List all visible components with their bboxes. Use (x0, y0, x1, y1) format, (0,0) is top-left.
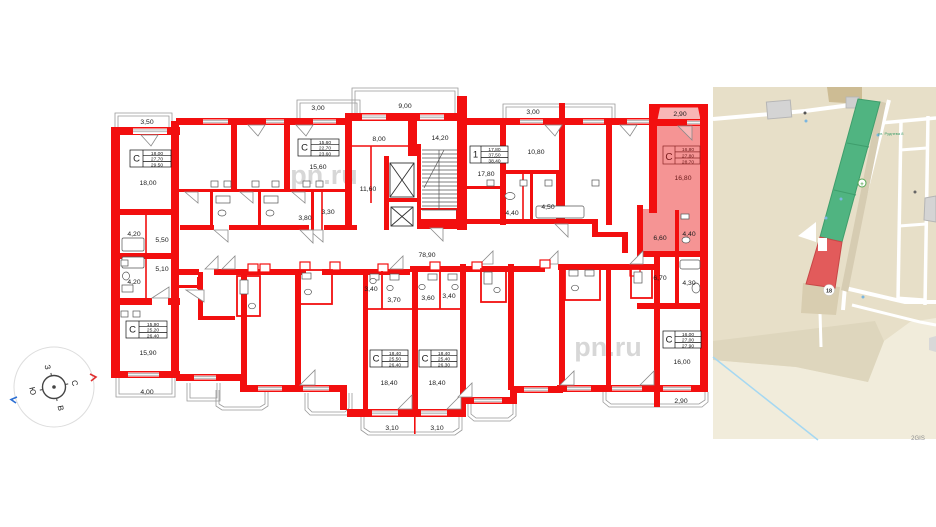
svg-text:3,40: 3,40 (442, 293, 455, 300)
svg-text:2,90: 2,90 (673, 111, 686, 118)
svg-text:3,30: 3,30 (321, 209, 334, 216)
svg-text:5,10: 5,10 (155, 266, 168, 273)
svg-text:10,80: 10,80 (527, 149, 544, 156)
svg-text:18,40: 18,40 (389, 351, 402, 357)
svg-text:18: 18 (826, 289, 832, 295)
svg-text:3,40: 3,40 (364, 286, 377, 293)
svg-text:С: С (301, 143, 308, 154)
svg-text:+: + (860, 182, 864, 188)
svg-text:4,40: 4,40 (682, 231, 695, 238)
svg-text:18,00: 18,00 (139, 180, 156, 187)
svg-text:3,00: 3,00 (311, 105, 324, 112)
svg-text:15,60: 15,60 (309, 164, 326, 171)
svg-text:28,70: 28,70 (682, 159, 695, 165)
svg-text:4,20: 4,20 (127, 279, 140, 286)
svg-text:26,30: 26,30 (438, 362, 451, 368)
svg-text:4,00: 4,00 (140, 389, 153, 396)
svg-text:4,50: 4,50 (541, 204, 554, 211)
svg-text:26,40: 26,40 (147, 333, 160, 339)
svg-text:25,50: 25,50 (389, 357, 402, 363)
svg-text:3,80: 3,80 (298, 215, 311, 222)
svg-text:18,40: 18,40 (438, 351, 451, 357)
svg-text:4,20: 4,20 (127, 231, 140, 238)
svg-text:29,50: 29,50 (151, 162, 164, 168)
svg-text:18,40: 18,40 (428, 380, 445, 387)
svg-text:15,90: 15,90 (147, 322, 160, 328)
svg-text:3,50: 3,50 (140, 119, 153, 126)
svg-text:С: С (373, 354, 380, 365)
svg-text:3,00: 3,00 (526, 109, 539, 116)
svg-text:4,30: 4,30 (682, 280, 695, 287)
svg-text:ул. Руднева 8: ул. Руднева 8 (878, 131, 904, 136)
svg-text:16,80: 16,80 (674, 175, 691, 182)
svg-text:4,40: 4,40 (505, 210, 518, 217)
svg-text:С: С (129, 325, 136, 336)
svg-text:27,70: 27,70 (151, 157, 164, 163)
svg-text:22,70: 22,70 (319, 146, 332, 152)
svg-text:14,20: 14,20 (431, 135, 448, 142)
svg-text:27,80: 27,80 (682, 153, 695, 159)
svg-text:С: С (133, 154, 140, 165)
svg-text:8,00: 8,00 (372, 136, 385, 143)
svg-text:1: 1 (473, 150, 478, 161)
svg-text:27,00: 27,00 (682, 338, 695, 344)
svg-text:17,80: 17,80 (488, 147, 501, 153)
svg-text:78,90: 78,90 (418, 252, 435, 259)
svg-text:27,90: 27,90 (682, 343, 695, 349)
svg-text:С: С (665, 152, 672, 163)
svg-text:16,00: 16,00 (682, 332, 695, 338)
svg-text:25,20: 25,20 (147, 328, 160, 334)
svg-text:3,10: 3,10 (385, 425, 398, 432)
svg-text:18,00: 18,00 (151, 151, 164, 157)
svg-text:3,60: 3,60 (421, 295, 434, 302)
svg-text:17,80: 17,80 (477, 171, 494, 178)
svg-text:15,60: 15,60 (319, 140, 332, 146)
svg-text:5,50: 5,50 (155, 237, 168, 244)
svg-text:26,40: 26,40 (389, 362, 402, 368)
svg-text:16,00: 16,00 (673, 359, 690, 366)
svg-text:23,60: 23,60 (319, 151, 332, 157)
svg-text:11,60: 11,60 (360, 186, 377, 193)
svg-text:6,70: 6,70 (653, 275, 666, 282)
svg-text:37,50: 37,50 (488, 153, 501, 159)
svg-text:3,10: 3,10 (430, 425, 443, 432)
svg-text:6,60: 6,60 (653, 235, 666, 242)
svg-text:9,00: 9,00 (398, 103, 411, 110)
svg-text:25,40: 25,40 (438, 357, 451, 363)
svg-text:2GIS: 2GIS (911, 436, 925, 442)
svg-text:3,70: 3,70 (387, 297, 400, 304)
svg-text:2,90: 2,90 (674, 398, 687, 405)
svg-text:С: С (422, 354, 429, 365)
svg-text:15,90: 15,90 (139, 350, 156, 357)
svg-text:18,40: 18,40 (380, 380, 397, 387)
svg-text:16,80: 16,80 (682, 147, 695, 153)
svg-text:38,40: 38,40 (488, 158, 501, 164)
svg-text:С: С (666, 335, 673, 346)
